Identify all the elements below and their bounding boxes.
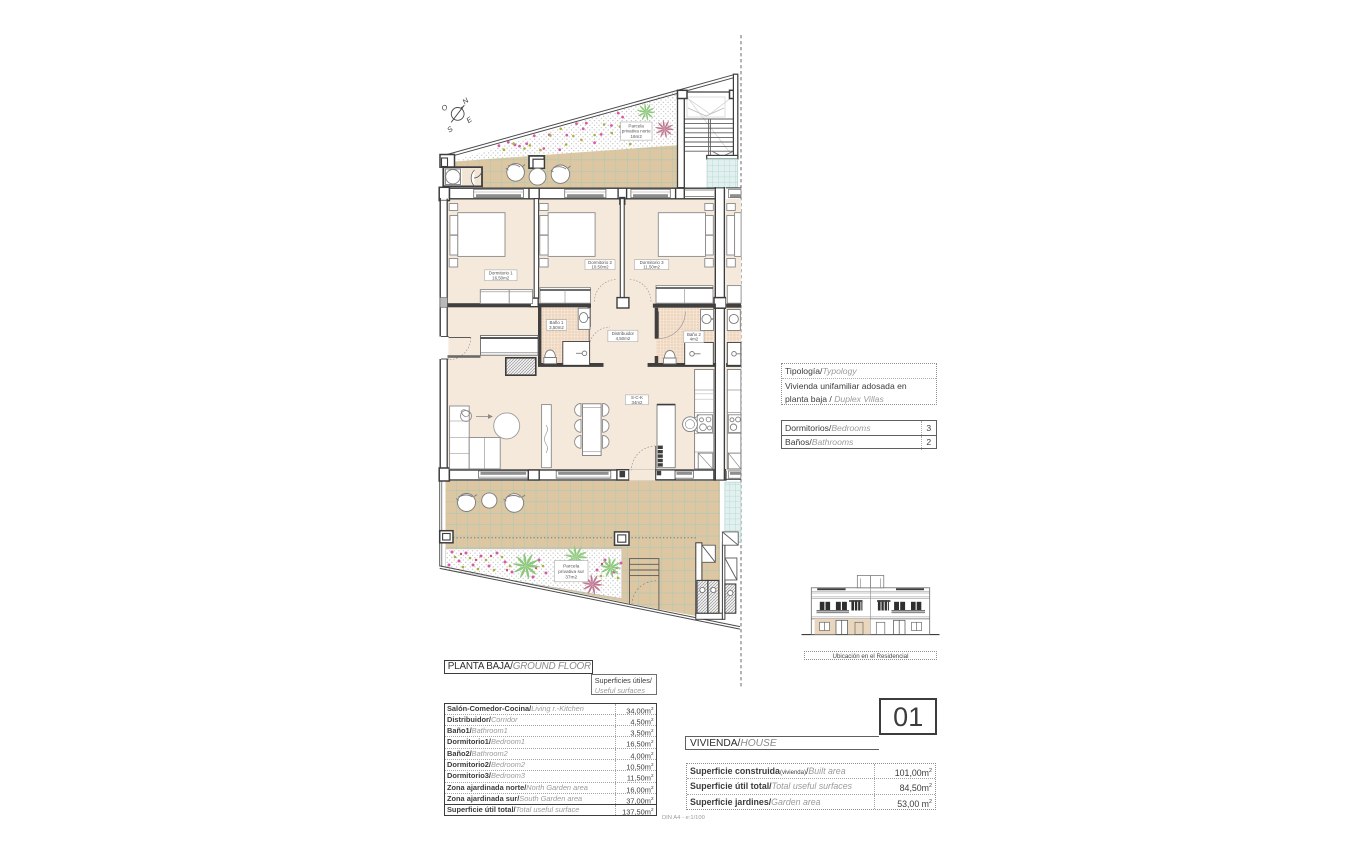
svg-text:E: E: [465, 115, 474, 125]
svg-text:4m2: 4m2: [690, 337, 699, 342]
svg-text:Parcela: Parcela: [563, 563, 580, 569]
svg-text:16,50m2: 16,50m2: [492, 275, 510, 280]
svg-text:3,50m2: 3,50m2: [549, 325, 564, 330]
svg-text:O: O: [439, 102, 449, 113]
svg-text:10,50m2: 10,50m2: [591, 265, 609, 270]
svg-text:N: N: [461, 95, 471, 106]
svg-text:S: S: [445, 124, 454, 134]
svg-text:37m2: 37m2: [565, 575, 577, 581]
svg-text:privativa sur: privativa sur: [558, 569, 584, 575]
svg-text:11,50m2: 11,50m2: [643, 265, 660, 270]
svg-text:4,50m2: 4,50m2: [616, 336, 631, 341]
svg-text:16m2: 16m2: [630, 134, 642, 139]
svg-text:34m2: 34m2: [632, 400, 644, 405]
